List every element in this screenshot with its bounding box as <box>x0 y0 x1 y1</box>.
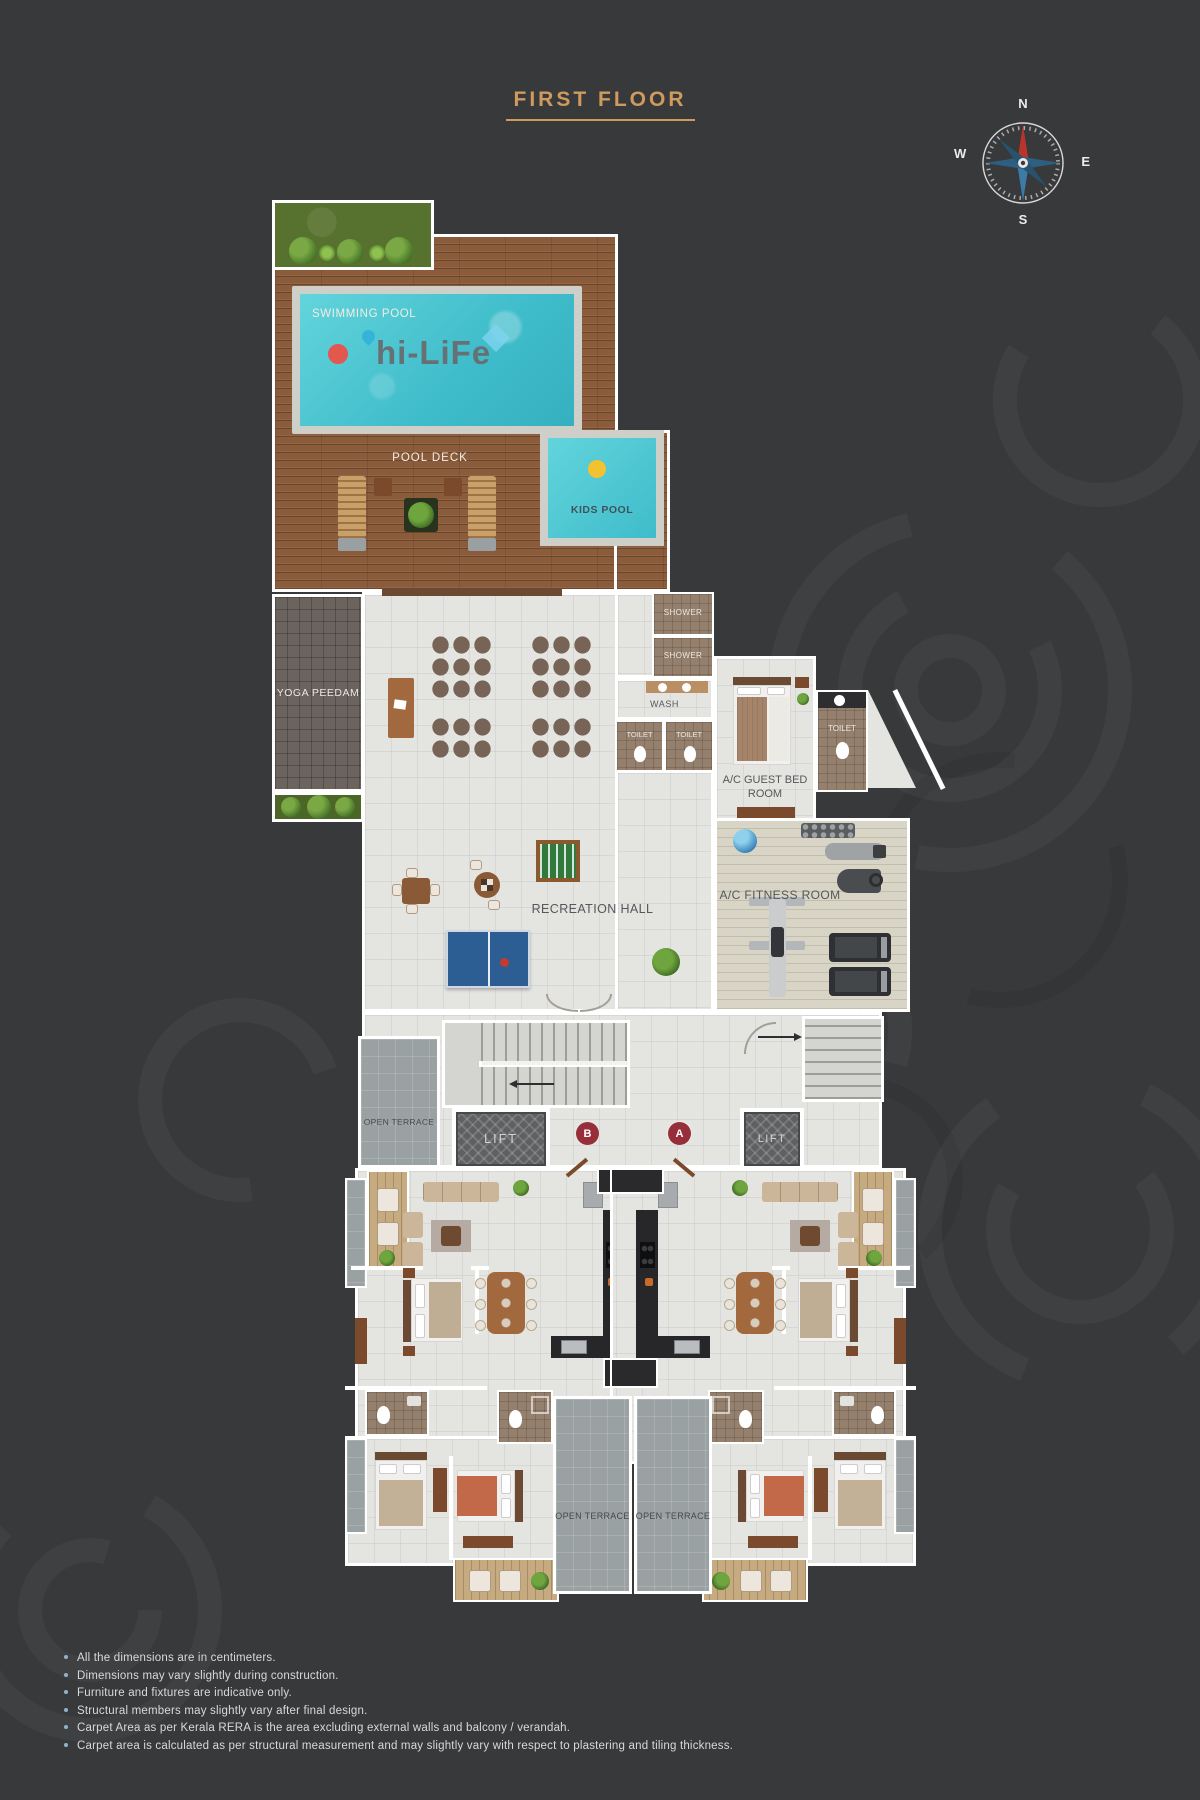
lounger-foot <box>468 538 496 551</box>
guest-toilet: TOILET <box>816 690 868 792</box>
pool-deck-label: POOL DECK <box>360 452 500 464</box>
yoga-garden-strip <box>272 792 364 822</box>
reception-desk <box>388 678 414 738</box>
chess-table <box>474 872 500 898</box>
bullet-icon <box>64 1743 68 1747</box>
swimming-pool-label: SWIMMING POOL <box>312 308 416 320</box>
wash-label: WASH <box>618 699 711 709</box>
open-terrace-left-label: OPEN TERRACE <box>355 1117 443 1127</box>
floorplan-canvas: FIRST FLOOR N S W E SWIM <box>0 0 1200 1800</box>
wash-area: WASH <box>615 678 714 720</box>
footnote-item: Furniture and fixtures are indicative on… <box>64 1685 1164 1703</box>
compass-north-label: N <box>962 96 1084 111</box>
lift-left-label: LIFT <box>484 1132 518 1146</box>
footnote-item: Carpet Area as per Kerala RERA is the ar… <box>64 1720 1164 1738</box>
hall-chair-group <box>430 716 493 760</box>
guest-bedroom: A/C GUEST BED ROOM <box>714 656 816 822</box>
recreation-hall-label: RECREATION HALL <box>500 902 685 916</box>
lift-right-label: LIFT <box>758 1133 787 1145</box>
footnotes: All the dimensions are in centimeters. D… <box>64 1650 1164 1755</box>
lift-left: LIFT <box>452 1108 550 1170</box>
tower-b-badge: B <box>576 1122 599 1145</box>
toilet-2-label: TOILET <box>666 730 712 739</box>
treadmill-icon <box>829 967 891 996</box>
toilet-room-1: TOILET <box>615 720 664 772</box>
shower-room-2: SHOWER <box>652 636 714 678</box>
lounger-icon <box>468 476 496 538</box>
compass: N S W E <box>962 100 1084 230</box>
hall-chair-group <box>530 634 593 700</box>
game-chair <box>430 884 440 896</box>
compass-east-label: E <box>1081 154 1090 169</box>
kids-pool-label: KIDS POOL <box>548 504 656 516</box>
stair-arrowhead <box>509 1080 517 1088</box>
guest-toilet-label: TOILET <box>818 724 866 733</box>
stair-landing <box>445 1023 479 1105</box>
footnote-item: Structural members may slightly vary aft… <box>64 1703 1164 1721</box>
open-terrace-bottom-left-label: OPEN TERRACE <box>546 1511 639 1521</box>
logo-text: hi-LiFe <box>376 334 491 372</box>
side-table-icon <box>374 478 392 496</box>
shower-1-label: SHOWER <box>654 608 712 617</box>
footnote-text: Dimensions may vary slightly during cons… <box>77 1670 339 1682</box>
bullet-icon <box>64 1673 68 1677</box>
bullet-icon <box>64 1725 68 1729</box>
game-chair <box>392 884 402 896</box>
guest-bedroom-label: A/C GUEST BED ROOM <box>717 773 813 802</box>
footnote-text: All the dimensions are in centimeters. <box>77 1652 276 1664</box>
compass-rose-icon <box>972 112 1074 214</box>
tower-a-badge: A <box>668 1122 691 1145</box>
yoga-peedam-label: YOGA PEEDAM <box>261 687 375 699</box>
footnote-text: Carpet Area as per Kerala RERA is the ar… <box>77 1722 570 1734</box>
bullet-icon <box>64 1655 68 1659</box>
indoor-plant <box>652 948 680 976</box>
staircase-right <box>802 1016 884 1102</box>
bullet-icon <box>64 1708 68 1712</box>
footnote-item: All the dimensions are in centimeters. <box>64 1650 1164 1668</box>
brand-logo: hi-LiFe <box>364 334 564 384</box>
fitness-room-label: A/C FITNESS ROOM <box>714 888 846 902</box>
compass-west-label: W <box>954 146 966 161</box>
open-terrace-bottom-left: OPEN TERRACE <box>553 1396 632 1594</box>
side-table-icon <box>444 478 462 496</box>
tower-a-label: A <box>676 1128 684 1140</box>
tower-b-label: B <box>584 1128 592 1140</box>
game-chair <box>406 868 418 878</box>
open-terrace-bottom-right: OPEN TERRACE <box>634 1396 712 1594</box>
game-chair <box>488 900 500 910</box>
lift-right: LIFT <box>740 1108 804 1170</box>
lawn-strip <box>272 200 434 270</box>
hall-top-wall <box>382 588 562 596</box>
swim-ring-icon <box>328 344 348 364</box>
compass-south-label: S <box>962 212 1084 227</box>
footnote-text: Structural members may slightly vary aft… <box>77 1705 368 1717</box>
lounger-icon <box>338 476 366 538</box>
toilet-1-label: TOILET <box>617 730 662 739</box>
treadmill-icon <box>829 933 891 962</box>
page-title-text: FIRST FLOOR <box>506 88 695 121</box>
planter-box <box>404 498 438 532</box>
stair-rail <box>482 1061 628 1065</box>
open-terrace-bottom-right-label: OPEN TERRACE <box>627 1511 719 1521</box>
fitness-room <box>714 818 910 1012</box>
footnote-item: Carpet area is calculated as per structu… <box>64 1738 1164 1756</box>
swimming-pool: SWIMMING POOL hi-LiFe <box>292 286 582 434</box>
foosball-table <box>536 840 580 882</box>
entry-arrowhead <box>794 1033 802 1041</box>
yoga-peedam: YOGA PEEDAM <box>272 594 364 792</box>
open-terrace-left: OPEN TERRACE <box>358 1036 440 1168</box>
wet-corridor <box>615 592 655 678</box>
game-chair <box>406 904 418 914</box>
kids-pool: KIDS POOL <box>540 430 664 546</box>
footnote-text: Carpet area is calculated as per structu… <box>77 1740 733 1752</box>
entry-arrow <box>758 1036 796 1038</box>
shower-room-1: SHOWER <box>652 592 714 636</box>
kids-ring-icon <box>588 460 606 478</box>
stair-arrow <box>516 1083 554 1085</box>
bullet-icon <box>64 1690 68 1694</box>
pingpong-table <box>446 930 530 988</box>
lounger-foot <box>338 538 366 551</box>
footnote-item: Dimensions may vary slightly during cons… <box>64 1668 1164 1686</box>
logo-drop-icon <box>359 327 377 345</box>
exercise-ball-icon <box>733 829 757 853</box>
dumbbell-rack <box>801 823 855 838</box>
footnote-text: Furniture and fixtures are indicative on… <box>77 1687 292 1699</box>
card-table <box>402 878 430 904</box>
paddle-icon <box>500 958 509 967</box>
game-chair <box>470 860 482 870</box>
hall-chair-group <box>430 634 493 700</box>
toilet-room-2: TOILET <box>664 720 714 772</box>
shower-2-label: SHOWER <box>654 651 712 660</box>
hall-chair-group <box>530 716 593 760</box>
